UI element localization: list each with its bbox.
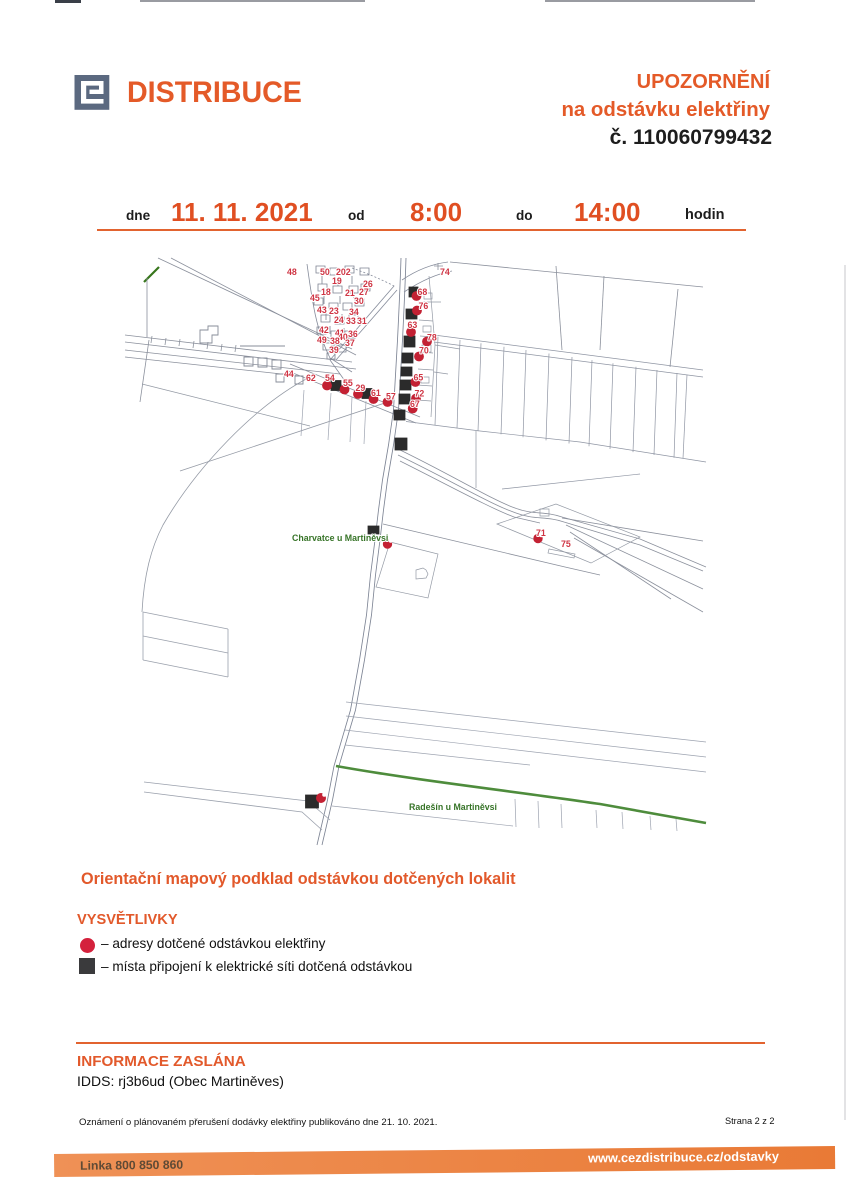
svg-text:Radešín u Martiněvsi: Radešín u Martiněvsi	[409, 802, 497, 812]
svg-text:33: 33	[346, 316, 356, 326]
svg-text:65: 65	[414, 373, 424, 383]
svg-text:55: 55	[343, 378, 353, 388]
svg-text:42: 42	[319, 325, 329, 335]
svg-text:54: 54	[325, 373, 335, 383]
svg-text:Charvatce u Martiněvsi: Charvatce u Martiněvsi	[292, 533, 388, 543]
svg-text:62: 62	[306, 373, 316, 383]
svg-text:29: 29	[356, 383, 366, 393]
svg-text:24: 24	[334, 315, 344, 325]
svg-text:71: 71	[536, 528, 546, 538]
svg-text:78: 78	[427, 333, 437, 343]
svg-text:72: 72	[415, 389, 425, 399]
svg-text:57: 57	[386, 392, 396, 402]
svg-text:48: 48	[287, 267, 297, 277]
svg-text:61: 61	[371, 388, 381, 398]
svg-text:44: 44	[284, 369, 294, 379]
svg-text:37: 37	[345, 338, 355, 348]
svg-text:76: 76	[419, 301, 429, 311]
svg-text:63: 63	[408, 320, 418, 330]
svg-text:31: 31	[357, 316, 367, 326]
svg-text:39: 39	[329, 345, 339, 355]
svg-text:19: 19	[332, 276, 342, 286]
svg-text:50: 50	[320, 267, 330, 277]
svg-text:49: 49	[317, 335, 327, 345]
svg-text:18: 18	[321, 287, 331, 297]
svg-text:43: 43	[317, 305, 327, 315]
svg-text:70: 70	[419, 346, 429, 356]
svg-text:30: 30	[354, 296, 364, 306]
svg-text:67: 67	[410, 399, 420, 409]
svg-text:75: 75	[561, 539, 571, 549]
svg-text:74: 74	[440, 267, 450, 277]
svg-text:45: 45	[310, 293, 320, 303]
svg-text:68: 68	[418, 287, 428, 297]
